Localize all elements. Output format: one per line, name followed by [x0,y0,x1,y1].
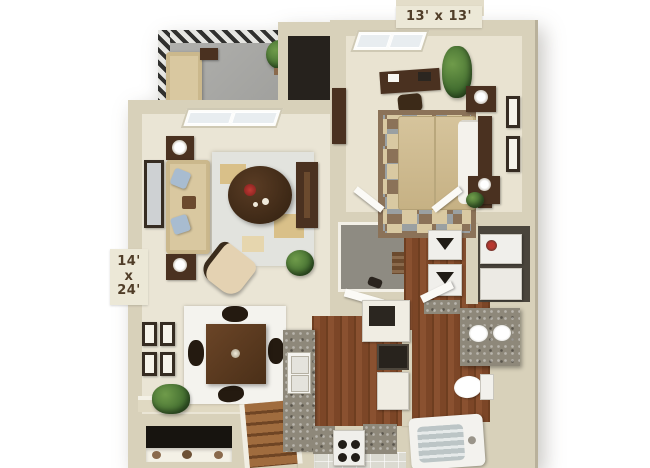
shelf-decor-1 [152,451,161,459]
nightstand-top-decor [474,90,488,104]
stove-burner-1 [338,440,347,449]
living-dimensions-length: 24' [117,284,141,299]
bedroom-window [350,30,429,52]
dining-chair-left [188,340,204,366]
desk-papers [388,74,399,82]
hall-wall-decor [392,252,404,274]
shelf-decor-3 [214,451,223,459]
gallery-frame-3 [142,352,157,376]
washer-lid-opening [436,238,454,250]
coffee-table-flowers [244,184,256,196]
bed-fold-line [434,116,436,208]
bedroom-wall-art-1 [506,96,520,128]
bath-vanity-side [424,300,460,314]
living-dimensions-label: 14' x 24' [110,249,148,305]
balcony-side-table [200,48,218,60]
dining-chair-top [222,306,248,322]
living-dimensions-width: 14' [117,255,141,270]
living-window [181,108,283,128]
stove-burner-4 [351,453,360,462]
wall-oven [377,344,409,370]
kitchen-counter-bottom [313,426,335,454]
bathtub-faucet [468,436,477,445]
bathtub [408,413,485,468]
desk-laptop [418,72,431,81]
bedroom-wall-art-2 [506,136,520,172]
bath-sink-1 [468,324,489,343]
media-console [296,162,318,228]
bedroom-dresser [332,88,346,144]
utility-cabinet [480,268,522,300]
coffee-table [228,166,292,224]
nightstand-bottom-bowl [478,178,491,191]
shelf-decor-2 [182,450,192,459]
gallery-frame-4 [160,352,175,376]
media-console-slot [304,172,310,218]
kitchen-sink [287,352,311,394]
coffee-table-decor-2 [253,202,258,207]
coffee-table-decor [262,198,269,205]
kitchen-sink-basin-1 [291,356,309,374]
gallery-frame-2 [160,322,175,346]
bedroom-dimensions-label: 13' x 13' [396,6,482,28]
water-heater-dial [486,240,497,251]
sofa-throw [182,196,196,209]
kitchen-counter-right [363,424,397,454]
bathtub-basin [417,424,465,463]
kitchen-lower-cabinet [377,372,409,410]
gallery-frame-1 [142,322,157,346]
dining-centerpiece [231,349,240,358]
toilet-tank [480,374,494,400]
living-plant [286,250,314,276]
bath-sink-2 [492,324,512,342]
storage-nook-floor [288,36,332,100]
floorplan-canvas: 13' x 13' 14' x 24' [0,0,650,468]
living-wall-art [144,160,164,228]
end-table-top-vase [172,140,187,155]
kitchen-sink-basin-2 [291,375,309,392]
stove-burner-3 [338,453,347,462]
dining-plant [152,384,190,414]
kitchen-upper-cabinet [362,300,410,342]
bedroom-dimensions-text: 13' x 13' [406,10,472,25]
kitchen-cabinet-inset [369,306,395,326]
nightstand-plant [466,192,484,208]
living-dimensions-separator: x [125,270,134,285]
stove-burner-2 [351,440,360,449]
end-table-bottom-decor [173,258,187,272]
rug-accent-3 [242,236,264,252]
stove [333,430,365,466]
washer [428,230,462,260]
dining-chair-right [268,338,284,364]
entry-niche [146,426,232,448]
